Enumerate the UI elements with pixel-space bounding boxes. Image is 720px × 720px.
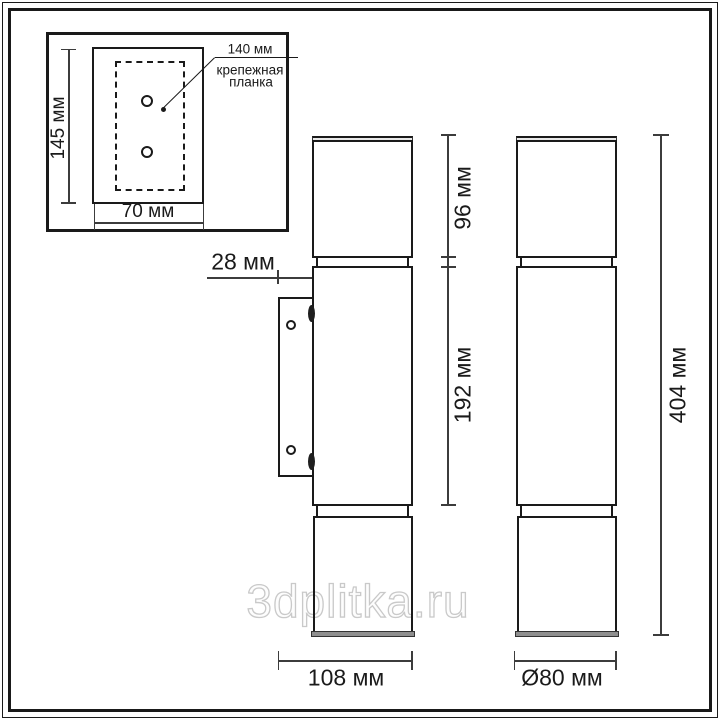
- bracket-screw-bottom: [286, 445, 296, 455]
- plate-width-label: 70 мм: [122, 201, 175, 223]
- top-section-height-label: 96 мм: [450, 166, 477, 230]
- lamp-top-section: [312, 140, 413, 258]
- middle-section-height-label: 192 мм: [450, 347, 477, 423]
- mounting-hole-bottom: [141, 146, 153, 158]
- section-dim-tick-3: [441, 266, 456, 268]
- bracket-screw-top: [286, 320, 296, 330]
- lamp-bottom-cap: [515, 631, 619, 637]
- plate-height-dim-tick-bottom: [61, 202, 76, 204]
- plate-caption-line2: планка: [229, 75, 273, 90]
- lamp-middle-section: [312, 266, 413, 506]
- plate-height-label: 145 мм: [48, 96, 70, 159]
- wall-offset-label: 28 мм: [211, 249, 275, 276]
- total-height-dim-line: [660, 135, 662, 635]
- mounting-plate-dashed-outline: [115, 61, 185, 191]
- bracket-joint-shadow-top: [308, 305, 315, 322]
- diameter-label: Ø80 мм: [521, 665, 603, 692]
- section-dim-tick-4: [441, 504, 456, 506]
- lamp-bottom-cap: [311, 631, 415, 637]
- lamp-bottom-section: [313, 516, 413, 637]
- plate-width-dim-tick-left: [94, 204, 96, 230]
- hole-spacing-label: 140 мм: [228, 42, 273, 57]
- diameter-dim-line: [514, 660, 616, 662]
- section-dim-tick-2: [441, 256, 456, 258]
- lamp-middle-section: [516, 266, 617, 506]
- leader-dot: [161, 107, 166, 112]
- total-height-dim-tick-bottom: [653, 634, 669, 636]
- plate-width-dim-tick-right: [203, 204, 205, 230]
- mounting-hole-top: [141, 95, 153, 107]
- wall-offset-dim-line: [207, 277, 312, 279]
- technical-drawing: 3dplitka.ru 145 мм 70 мм 140 мм крепежна…: [0, 0, 720, 720]
- section-dim-line: [447, 135, 449, 505]
- callout-underline: [215, 57, 298, 58]
- diameter-dim-tick-left: [514, 651, 516, 670]
- depth-dim-tick-right: [411, 651, 413, 670]
- total-height-label: 404 мм: [665, 347, 692, 423]
- section-dim-tick-1: [441, 134, 456, 136]
- depth-dim-line: [278, 660, 412, 662]
- depth-dim-tick-left: [278, 651, 280, 670]
- bracket-joint-shadow-bottom: [308, 453, 315, 470]
- diameter-dim-tick-right: [615, 651, 617, 670]
- wall-bracket: [278, 297, 314, 477]
- total-height-dim-tick-top: [653, 134, 669, 136]
- depth-label: 108 мм: [308, 665, 384, 692]
- lamp-bottom-section: [517, 516, 617, 637]
- wall-offset-dim-tick: [277, 270, 279, 284]
- plate-height-dim-tick-top: [61, 49, 76, 51]
- lamp-top-section: [516, 140, 617, 258]
